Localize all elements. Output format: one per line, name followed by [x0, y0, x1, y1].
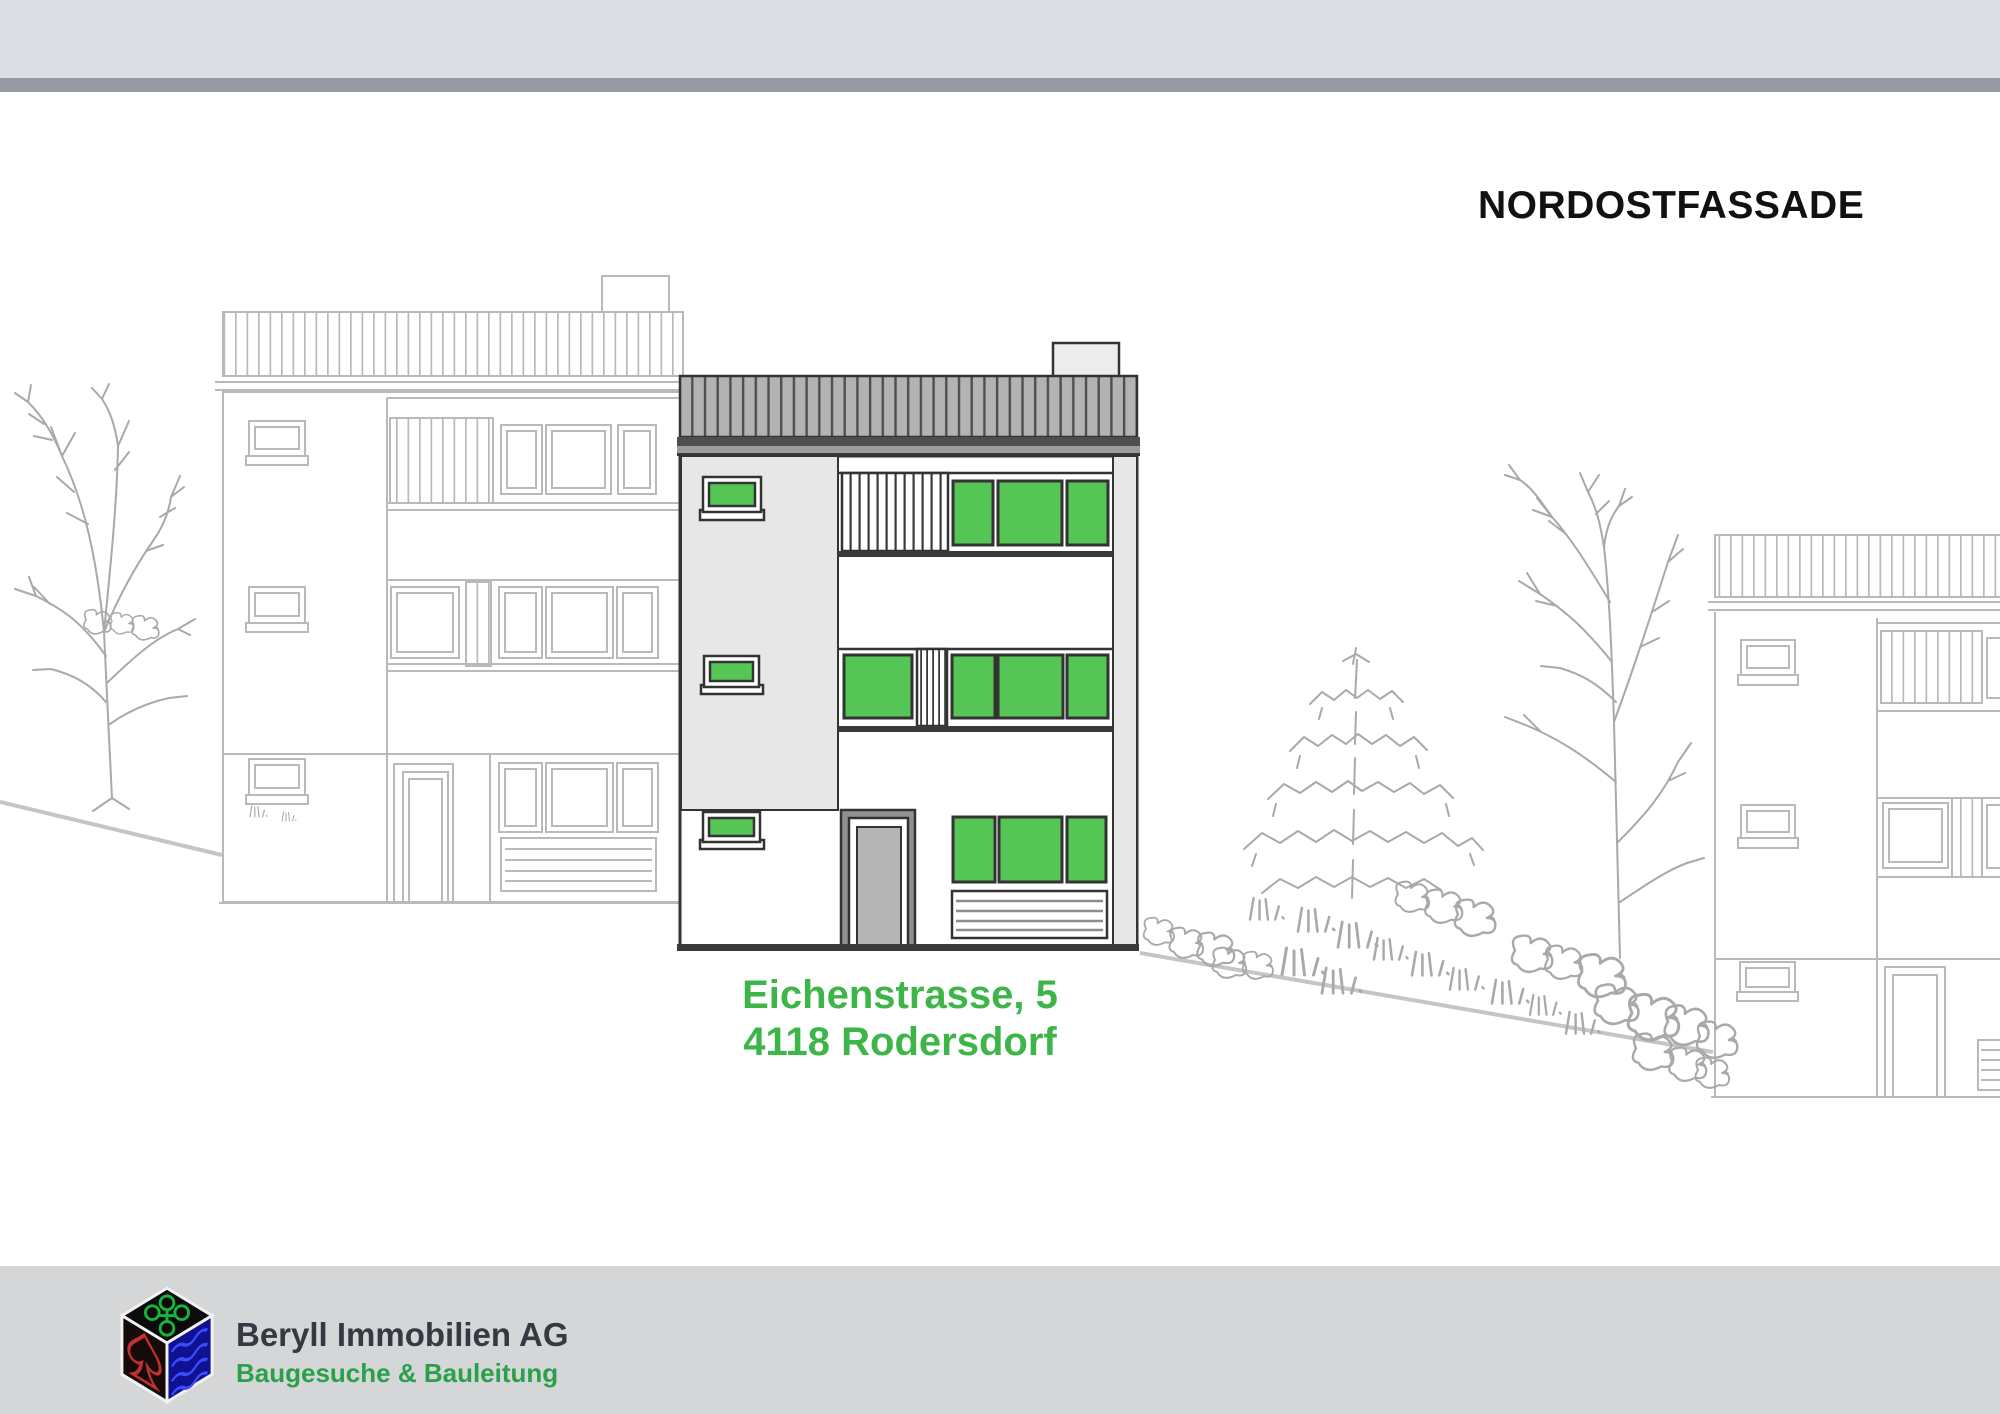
bare-tree-left — [15, 384, 195, 811]
shrubs-slope — [1144, 882, 1738, 1088]
footer-band: Beryll Immobilien AG Baugesuche & Baulei… — [0, 1266, 2000, 1414]
bare-tree-right — [1505, 465, 1704, 958]
left-garage-grille — [501, 838, 656, 891]
company-tagline: Baugesuche & Bauleitung — [236, 1358, 558, 1389]
stairwell-window — [709, 818, 754, 836]
right-neighbor-building — [1708, 535, 2000, 1097]
window — [998, 481, 1062, 545]
window — [999, 817, 1062, 882]
subject-roof — [680, 376, 1137, 437]
stairwell-window — [709, 483, 755, 506]
conifer-tree — [1244, 648, 1483, 898]
left-chimney — [602, 276, 669, 314]
subject-address-label: Eichenstrasse, 5 4118 Rodersdorf — [650, 972, 1150, 1066]
window — [953, 481, 993, 545]
base-line — [677, 944, 1139, 951]
window — [844, 655, 912, 718]
shrub-left — [84, 610, 159, 640]
subject-building — [677, 343, 1140, 951]
stairwell-window — [710, 662, 753, 681]
balcony-slats-middle — [917, 649, 947, 726]
side-wall-strip — [1113, 456, 1137, 947]
window — [1067, 655, 1108, 718]
left-neighbor-building — [215, 276, 690, 903]
subject-chimney — [1053, 343, 1119, 377]
window — [998, 655, 1063, 718]
right-roof-parapet — [1715, 535, 2000, 597]
window — [1067, 481, 1108, 545]
company-logo-cube-icon — [118, 1285, 216, 1405]
address-line2: 4118 Rodersdorf — [650, 1019, 1150, 1066]
entrance-door — [857, 827, 901, 947]
balcony-slats-top — [842, 473, 948, 551]
window — [1067, 817, 1106, 882]
left-roof-parapet — [223, 312, 683, 376]
window — [953, 817, 995, 882]
right-garage-grille — [1978, 1040, 2000, 1090]
window — [952, 655, 995, 718]
address-line1: Eichenstrasse, 5 — [650, 972, 1150, 1019]
elevation-sheet: NORDOSTFASSADE Eichenstrasse, 5 4118 Rod… — [0, 0, 2000, 1414]
drawing-title: NORDOSTFASSADE — [1478, 184, 1864, 228]
company-name: Beryll Immobilien AG — [236, 1316, 569, 1354]
